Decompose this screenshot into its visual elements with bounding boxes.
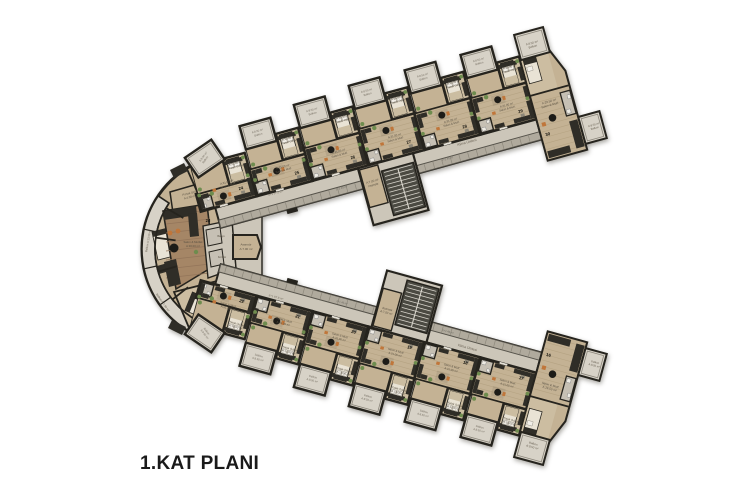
svg-text:Asansör: Asansör xyxy=(240,243,251,247)
svg-text:A:30.00 m²: A:30.00 m² xyxy=(186,244,200,248)
svg-text:23: 23 xyxy=(206,218,211,223)
svg-text:A:7.00 m²: A:7.00 m² xyxy=(239,247,252,251)
svg-text:Banyo: Banyo xyxy=(217,234,225,238)
svg-text:1.KAT PLANI: 1.KAT PLANI xyxy=(140,453,259,474)
svg-text:Koridor: Koridor xyxy=(218,255,226,259)
